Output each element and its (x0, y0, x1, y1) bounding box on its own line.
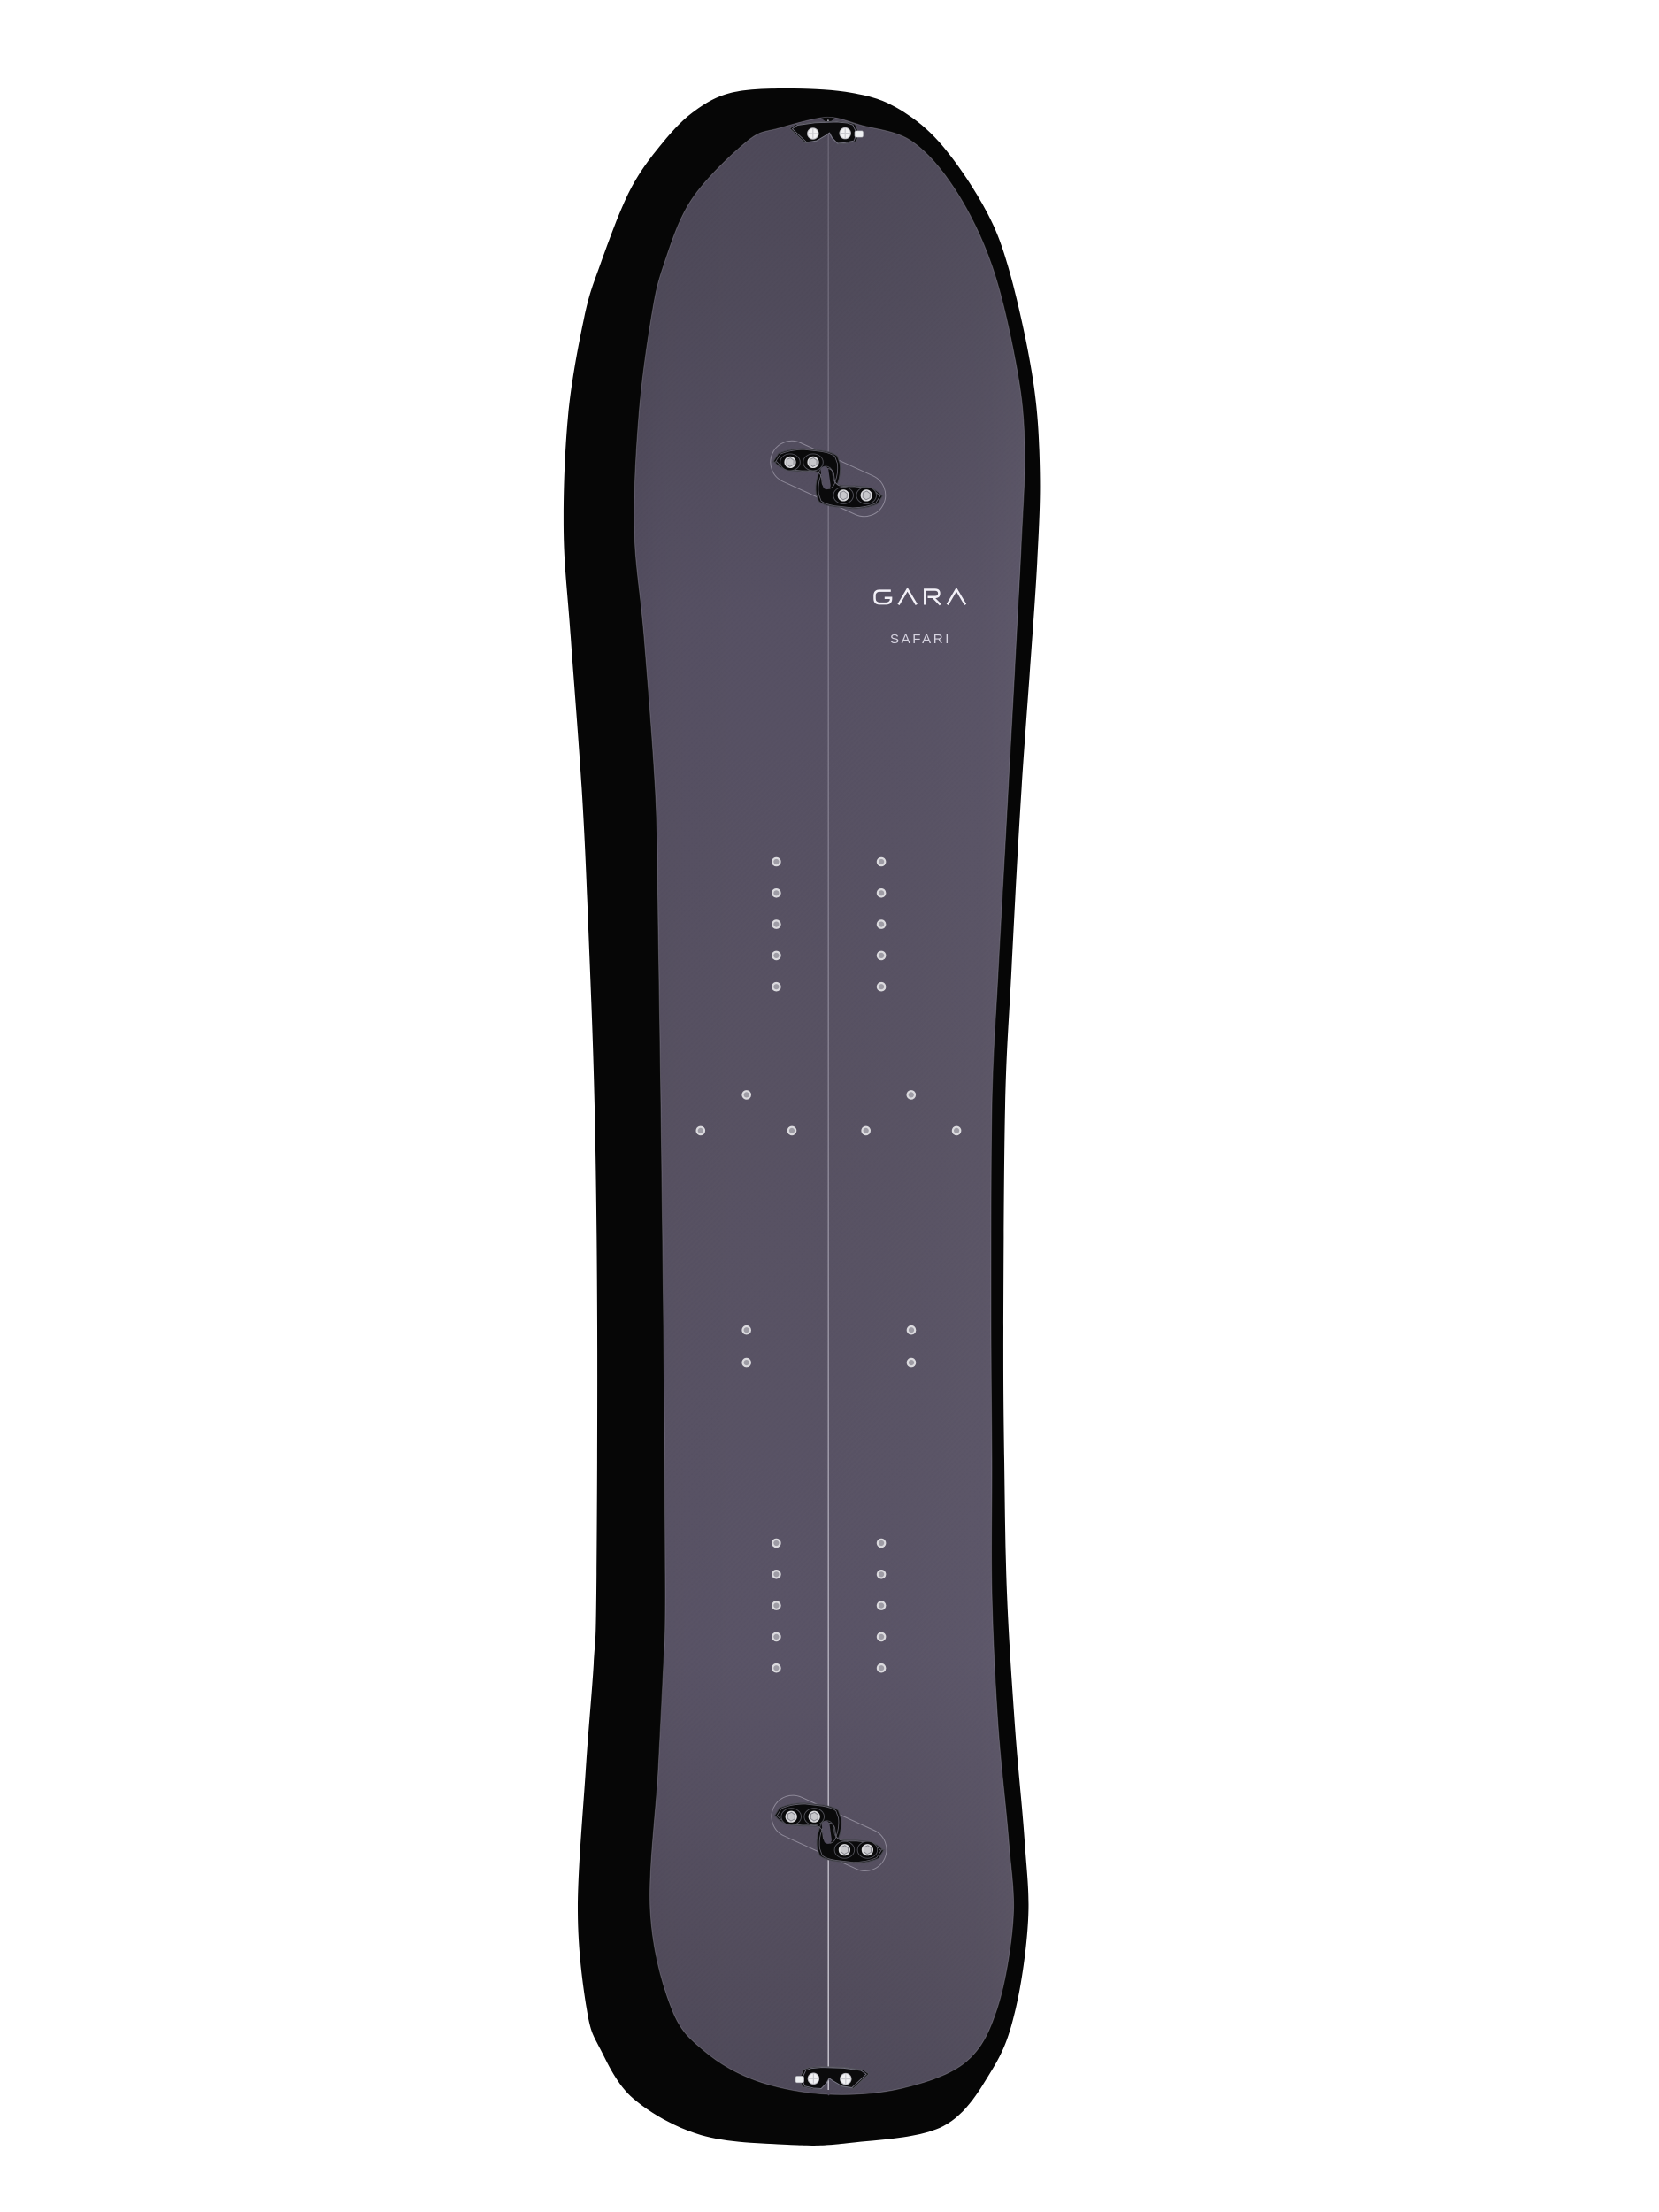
svg-text:SAFARI: SAFARI (890, 632, 951, 647)
